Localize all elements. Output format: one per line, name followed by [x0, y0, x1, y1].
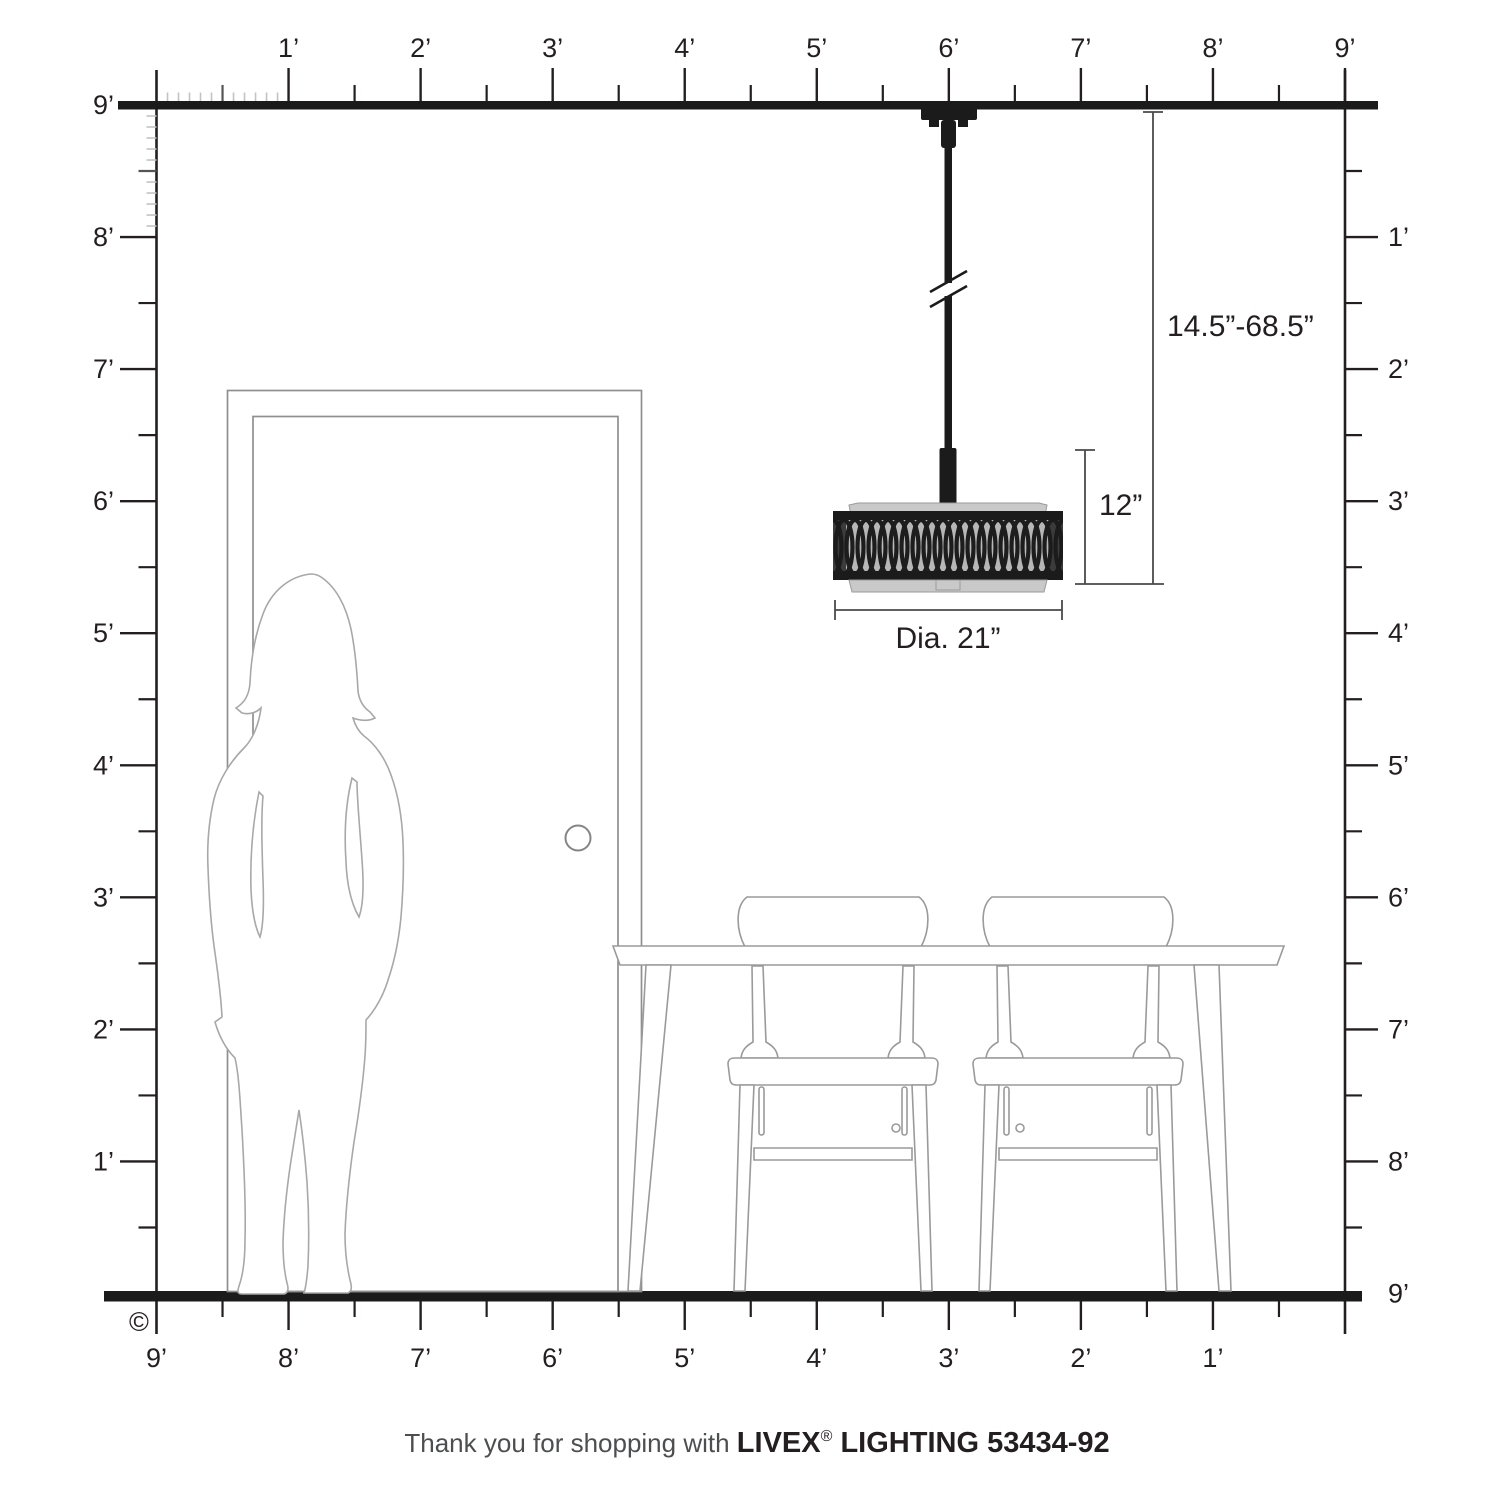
- ruler-label-top: 9’: [1334, 33, 1355, 63]
- chair-seat: [973, 1058, 1183, 1085]
- table-leg: [1194, 965, 1231, 1291]
- ruler-label-top: 1’: [278, 33, 299, 63]
- ruler-label-bottom: 6’: [542, 1343, 563, 1373]
- footer-brand: LIVEX: [737, 1427, 821, 1459]
- chair-leg: [912, 1085, 932, 1291]
- ruler-label-right: 5’: [1388, 750, 1409, 780]
- chair-back-post: [741, 966, 778, 1058]
- ruler-label-left: 6’: [93, 486, 114, 516]
- chair-backrest: [738, 897, 928, 947]
- woman-outline: [208, 574, 404, 1294]
- chair-slot: [759, 1087, 764, 1135]
- ruler-label-left: 4’: [93, 750, 114, 780]
- ruler-top: 1’2’3’4’5’6’7’8’9’: [168, 33, 1356, 101]
- chair-stretcher: [754, 1148, 912, 1160]
- woman-silhouette: [208, 574, 404, 1294]
- ruler-label-right: 4’: [1388, 618, 1409, 648]
- downrod-lower: [945, 296, 953, 454]
- ruler-label-bottom: 2’: [1070, 1343, 1091, 1373]
- door-knob: [566, 826, 591, 851]
- chair-seat: [728, 1058, 938, 1085]
- hang-range-label: 14.5”-68.5”: [1167, 310, 1314, 343]
- chair-backrest: [983, 897, 1173, 947]
- chair-slot: [1004, 1087, 1009, 1135]
- diagram-svg: 1’2’3’4’5’6’7’8’9’ 9’8’7’6’5’4’3’2’1’ 1’…: [0, 0, 1500, 1500]
- ruler-label-top: 7’: [1070, 33, 1091, 63]
- ruler-label-right: 7’: [1388, 1014, 1409, 1044]
- chair-back-post: [986, 966, 1023, 1058]
- ruler-label-bottom: 7’: [410, 1343, 431, 1373]
- chair-back-post: [1133, 966, 1170, 1058]
- shade-band-bottom-rail: [833, 571, 1063, 580]
- ceiling-line: [118, 101, 1378, 110]
- ruler-left: 9’8’7’6’5’4’3’2’1’: [93, 90, 157, 1227]
- diameter-label: Dia. 21”: [895, 622, 1000, 655]
- dimension-diagram: 1’2’3’4’5’6’7’8’9’ 9’8’7’6’5’4’3’2’1’ 1’…: [0, 0, 1500, 1500]
- chair-stretcher: [999, 1148, 1157, 1160]
- diffuser-center-notch: [936, 580, 960, 590]
- footer-prefix: Thank you for shopping with: [404, 1428, 736, 1458]
- ruler-label-bottom: 5’: [674, 1343, 695, 1373]
- registered-mark: ®: [821, 1428, 833, 1445]
- canopy-tab: [958, 120, 968, 127]
- ruler-label-left: 7’: [93, 354, 114, 384]
- chair-leg: [979, 1085, 999, 1291]
- ruler-label-bottom: 3’: [938, 1343, 959, 1373]
- fixture-height-label: 12”: [1099, 489, 1142, 522]
- ruler-label-bottom: 9’: [146, 1343, 167, 1373]
- canopy-tab: [929, 120, 939, 127]
- ruler-label-right: 1’: [1388, 222, 1409, 252]
- ruler-label-top: 8’: [1202, 33, 1223, 63]
- copyright-mark: ©: [129, 1307, 149, 1337]
- chair-leg: [734, 1085, 754, 1291]
- ruler-label-top: 3’: [542, 33, 563, 63]
- chair-slot: [902, 1087, 907, 1135]
- chair-slot: [1147, 1087, 1152, 1135]
- ruler-right: 1’2’3’4’5’6’7’8’9’: [1345, 171, 1409, 1308]
- chair-back-post: [888, 966, 925, 1058]
- ruler-label-left: 2’: [93, 1014, 114, 1044]
- ruler-bottom: 9’8’7’6’5’4’3’2’1’: [146, 1301, 1279, 1373]
- ruler-label-left: 1’: [93, 1146, 114, 1176]
- chair-hole: [1016, 1124, 1024, 1132]
- shade-band-right-edge: [1050, 511, 1063, 580]
- ruler-label-bottom: 1’: [1202, 1343, 1223, 1373]
- downrod-upper: [945, 120, 953, 283]
- table-top: [613, 946, 1284, 965]
- ruler-label-right: 2’: [1388, 354, 1409, 384]
- shade-band-top-rail: [833, 511, 1063, 520]
- ruler-label-right: 8’: [1388, 1146, 1409, 1176]
- footer-caption: Thank you for shopping with LIVEX® LIGHT…: [404, 1427, 1109, 1459]
- ruler-label-top: 2’: [410, 33, 431, 63]
- chair-hole: [892, 1124, 900, 1132]
- ruler-label-left: 5’: [93, 618, 114, 648]
- socket-stem: [940, 448, 957, 508]
- ruler-label-right: 6’: [1388, 882, 1409, 912]
- pendant-fixture: [833, 106, 1063, 592]
- table-leg: [628, 965, 671, 1291]
- shade-band-left-edge: [833, 511, 846, 580]
- ruler-label-left: 8’: [93, 222, 114, 252]
- ruler-label-bottom: 4’: [806, 1343, 827, 1373]
- ruler-label-top: 4’: [674, 33, 695, 63]
- chair-leg: [1157, 1085, 1177, 1291]
- canopy: [921, 106, 977, 120]
- ruler-label-left: 3’: [93, 882, 114, 912]
- ruler-label-left: 9’: [93, 90, 114, 120]
- floor-line: [104, 1291, 1362, 1302]
- ruler-label-bottom: 8’: [278, 1343, 299, 1373]
- ruler-label-top: 5’: [806, 33, 827, 63]
- ruler-label-top: 6’: [938, 33, 959, 63]
- shade-lattice-band: [833, 514, 1063, 580]
- ruler-label-right: 3’: [1388, 486, 1409, 516]
- dining-table: [613, 946, 1284, 1291]
- footer-suffix: LIGHTING 53434-92: [832, 1427, 1109, 1459]
- ruler-label-right: 9’: [1388, 1279, 1409, 1309]
